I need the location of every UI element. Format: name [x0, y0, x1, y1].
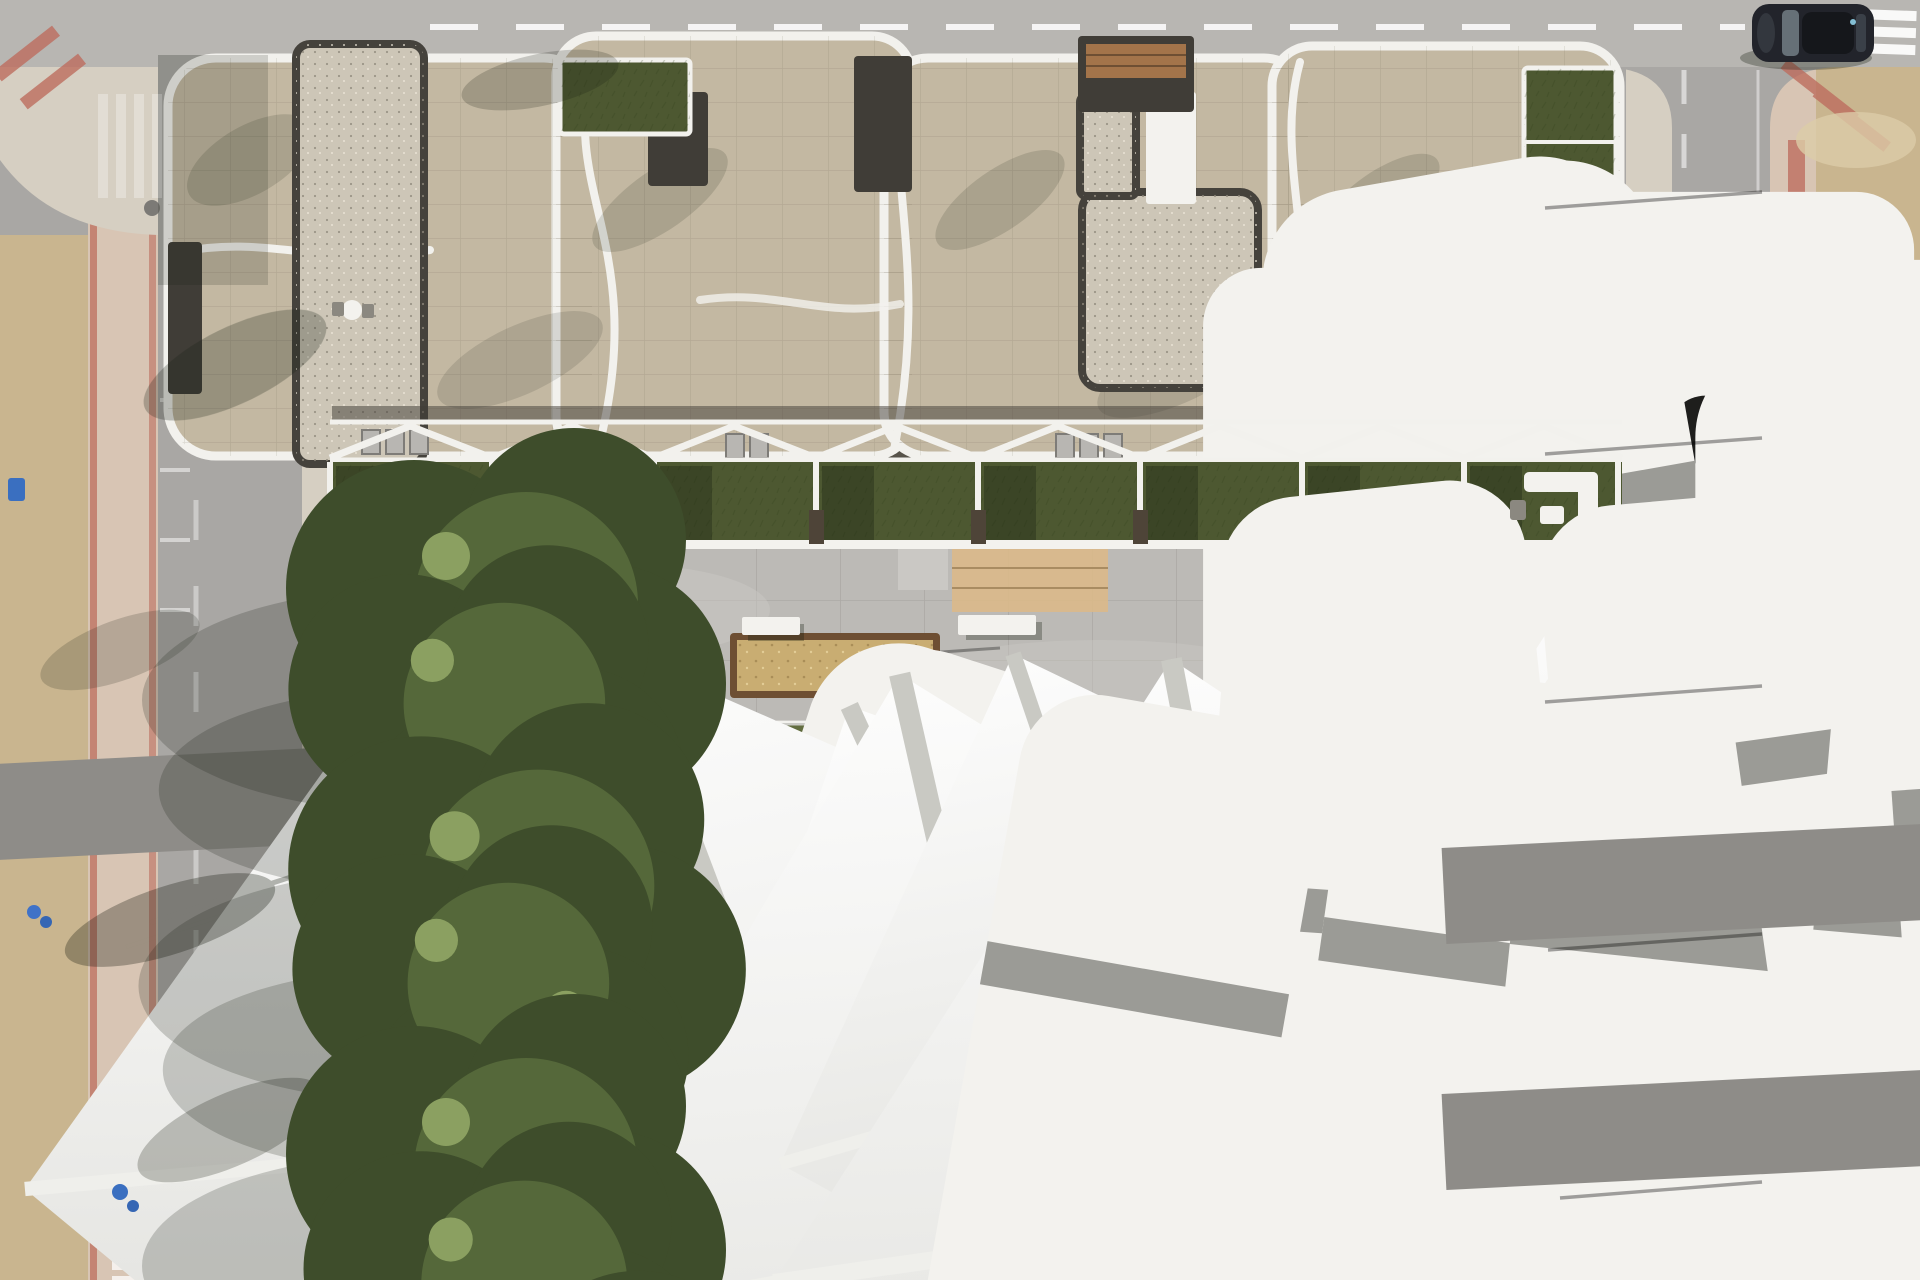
plaza-bench — [958, 615, 1042, 640]
manhole-cover — [144, 200, 160, 216]
dark-suv — [1740, 4, 1874, 70]
aerial-render — [0, 0, 1920, 1280]
scene-canvas — [0, 0, 1920, 1280]
plaza-bench — [742, 617, 804, 641]
stair-core — [1078, 36, 1194, 112]
